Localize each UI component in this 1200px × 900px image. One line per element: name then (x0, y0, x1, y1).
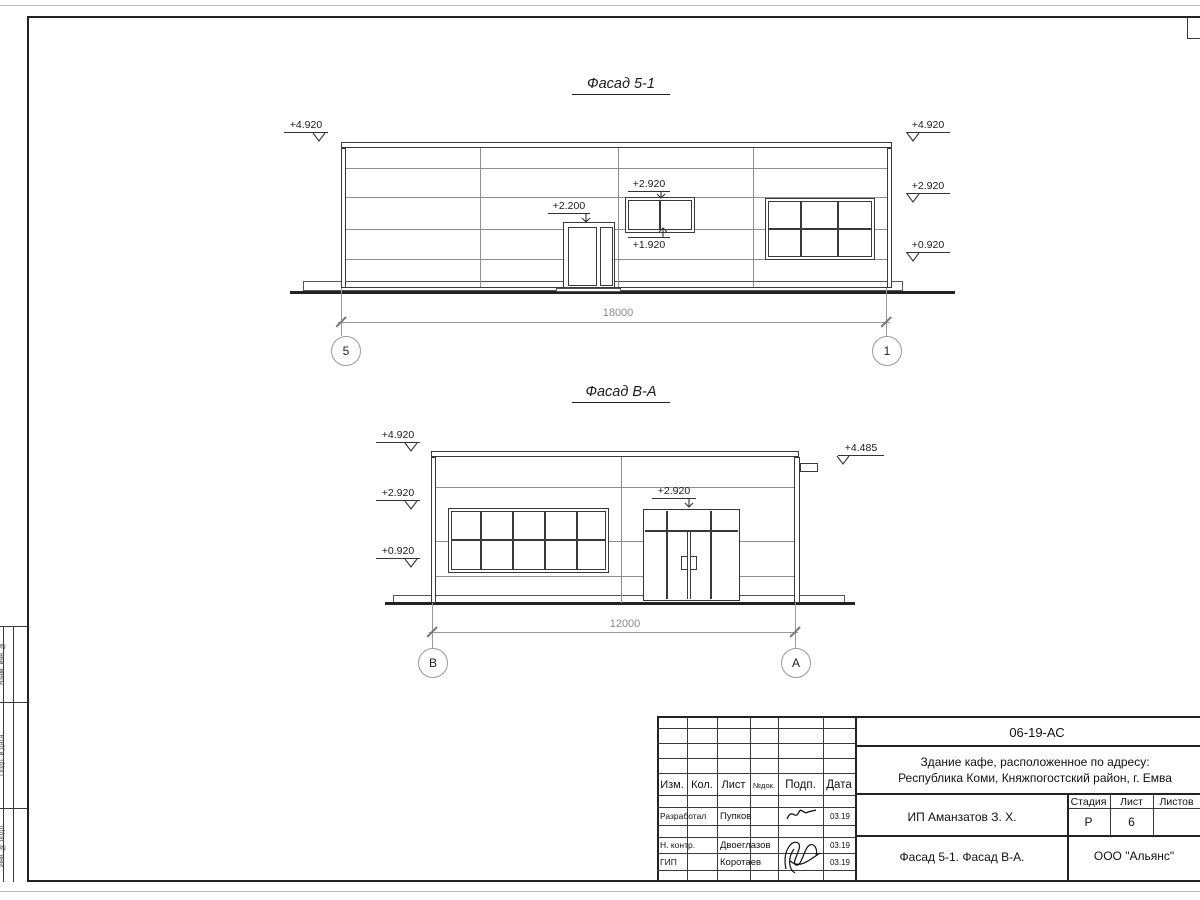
corner-column (887, 148, 892, 288)
elevation-mark: +4.920 (906, 119, 950, 133)
elevation-arrow-icon (906, 133, 920, 142)
extension-line (886, 288, 887, 336)
stage-header-list: Лист (1110, 795, 1153, 808)
sheet-edge-bottom (0, 891, 1200, 892)
siding-line (436, 576, 794, 577)
titleblock-line (657, 743, 855, 744)
col-header-podp: Подп. (778, 775, 823, 795)
signature-icon (778, 833, 824, 877)
siding-line (436, 487, 794, 488)
elevation-mark: +2.920 (376, 487, 420, 501)
axis-bubble: 5 (331, 336, 361, 366)
signer-date: 03.19 (826, 855, 854, 869)
extension-line (341, 288, 342, 336)
titleblock-line (857, 835, 1200, 837)
door-handle (681, 556, 688, 570)
dimension-line (338, 322, 890, 323)
project-description: Здание кафе, расположенное по адресу: Ре… (865, 749, 1200, 791)
axis-label: В (429, 656, 437, 670)
elevation-arrow-icon (312, 133, 326, 142)
sheet-edge-top (0, 5, 1200, 6)
door-leaf (568, 227, 597, 286)
axis-bubble: 1 (872, 336, 902, 366)
titleblock-line (657, 773, 855, 774)
elevation-mark: +0.920 (376, 545, 420, 559)
door-side-panel (600, 227, 613, 286)
elevation-mark: +1.920 (628, 237, 670, 251)
titleblock-line (1069, 808, 1200, 809)
window-rail (451, 539, 606, 541)
leader-arrow-icon (657, 227, 669, 237)
titleblock-line (717, 717, 718, 881)
siding-line (346, 168, 887, 169)
roof-cap (431, 451, 799, 457)
margin-label: Взам. инв. № (0, 626, 8, 702)
titleblock-line (657, 825, 855, 826)
facade-5-1-title: Фасад 5-1 (572, 76, 670, 95)
sheet-title: Фасад 5-1. Фасад В-А. (857, 846, 1067, 868)
elevation-arrow-icon (404, 501, 418, 510)
stage-value: Р (1067, 810, 1110, 834)
signer-date: 03.19 (826, 838, 854, 852)
elevation-arrow-icon (906, 253, 920, 262)
axis-bubble: А (781, 648, 811, 678)
elevation-mark: +4.920 (284, 119, 328, 133)
elevation-arrow-icon (906, 194, 920, 203)
project-line2: Республика Коми, Княжпогостский район, г… (898, 770, 1172, 786)
stage-header-listov: Листов (1153, 795, 1200, 808)
titleblock-line (657, 870, 855, 871)
titleblock-border (657, 716, 659, 882)
axis-bubble: В (418, 648, 448, 678)
door-threshold (556, 288, 621, 292)
leader-arrow-icon (580, 213, 592, 223)
elevation-mark: +2.920 (906, 180, 950, 194)
signer-name: Пупков (720, 808, 778, 824)
frame-top (27, 16, 1200, 18)
corner-stamp-bottom (1187, 38, 1200, 39)
elevation-mark: +0.920 (906, 239, 950, 253)
elevation-mark: +2.920 (628, 178, 670, 192)
extension-line (432, 603, 433, 648)
dimension-line (429, 632, 798, 633)
corner-column (431, 457, 436, 603)
titleblock-line (657, 758, 855, 759)
entrance-transom (645, 530, 738, 532)
dimension-text: 12000 (599, 618, 651, 630)
titleblock-line (857, 745, 1200, 747)
doc-number: 06-19-АС (857, 720, 1200, 744)
leader-arrow-icon (683, 499, 695, 508)
stage-header-stadia: Стадия (1067, 795, 1110, 808)
col-header-list: Лист (717, 775, 750, 795)
signer-role: Н. контр. (660, 838, 716, 852)
client-name: ИП Аманзатов З. Х. (857, 806, 1067, 828)
leader-arrow-icon (655, 191, 667, 199)
elevation-mark: +2.920 (652, 485, 696, 499)
titleblock-line (657, 728, 855, 729)
ground-line (385, 602, 855, 605)
extension-line (795, 603, 796, 648)
sheets-total (1153, 810, 1200, 834)
door-handle (690, 556, 697, 570)
signer-role: Разработал (660, 808, 716, 824)
drawing-sheet: Взам. инв. № Подп. и дата Инв. № подл. Ф… (0, 0, 1200, 900)
roof-cap (341, 142, 892, 148)
signer-date: 03.19 (826, 808, 854, 824)
panel-joint (621, 457, 622, 603)
elevation-mark: +2.200 (548, 200, 590, 214)
sheet-number: 6 (1110, 810, 1153, 834)
elevation-arrow-icon (404, 443, 418, 452)
titleblock-line (657, 853, 855, 854)
axis-label: А (792, 656, 800, 670)
col-header-izm: Изм. (657, 775, 687, 795)
margin-line (13, 626, 14, 882)
panel-joint (753, 148, 754, 287)
col-header-kol: Кол. (687, 775, 717, 795)
panel-joint (480, 148, 481, 287)
corner-column (794, 457, 800, 603)
titleblock-line (657, 795, 855, 796)
elevation-arrow-icon (404, 559, 418, 568)
axis-label: 1 (884, 344, 891, 358)
corner-column (341, 148, 346, 288)
ground-line (290, 291, 955, 294)
window-mullion (659, 200, 661, 230)
dimension-text: 18000 (592, 307, 644, 319)
project-line1: Здание кафе, расположенное по адресу: (920, 754, 1149, 770)
entrance-mullion (710, 511, 712, 599)
margin-label: Инв. № подл. (0, 808, 8, 882)
axis-label: 5 (343, 344, 350, 358)
margin-label: Подп. и дата (0, 702, 8, 808)
signer-name: Двоеглазов (720, 838, 778, 852)
signer-role: ГИП (660, 855, 716, 869)
elevation-arrow-icon (836, 456, 850, 465)
col-header-ndok: №док. (750, 775, 778, 795)
scupper (800, 463, 818, 472)
facade-b-a-title: Фасад В-А (572, 384, 670, 403)
window-rail (768, 228, 872, 230)
entrance-frame (643, 509, 740, 601)
elevation-mark: +4.485 (838, 442, 884, 456)
frame-left (27, 16, 29, 882)
col-header-data: Дата (823, 775, 855, 795)
signer-name: Коротаев (720, 855, 778, 869)
titleblock-border (657, 716, 1200, 718)
signature-icon (785, 805, 819, 825)
company-name: ООО "Альянс" (1069, 845, 1199, 867)
elevation-mark: +4.920 (376, 429, 420, 443)
titleblock-border (657, 880, 1200, 882)
panel-joint (618, 148, 619, 287)
entrance-mullion (666, 511, 668, 599)
corner-stamp-left (1187, 17, 1188, 38)
